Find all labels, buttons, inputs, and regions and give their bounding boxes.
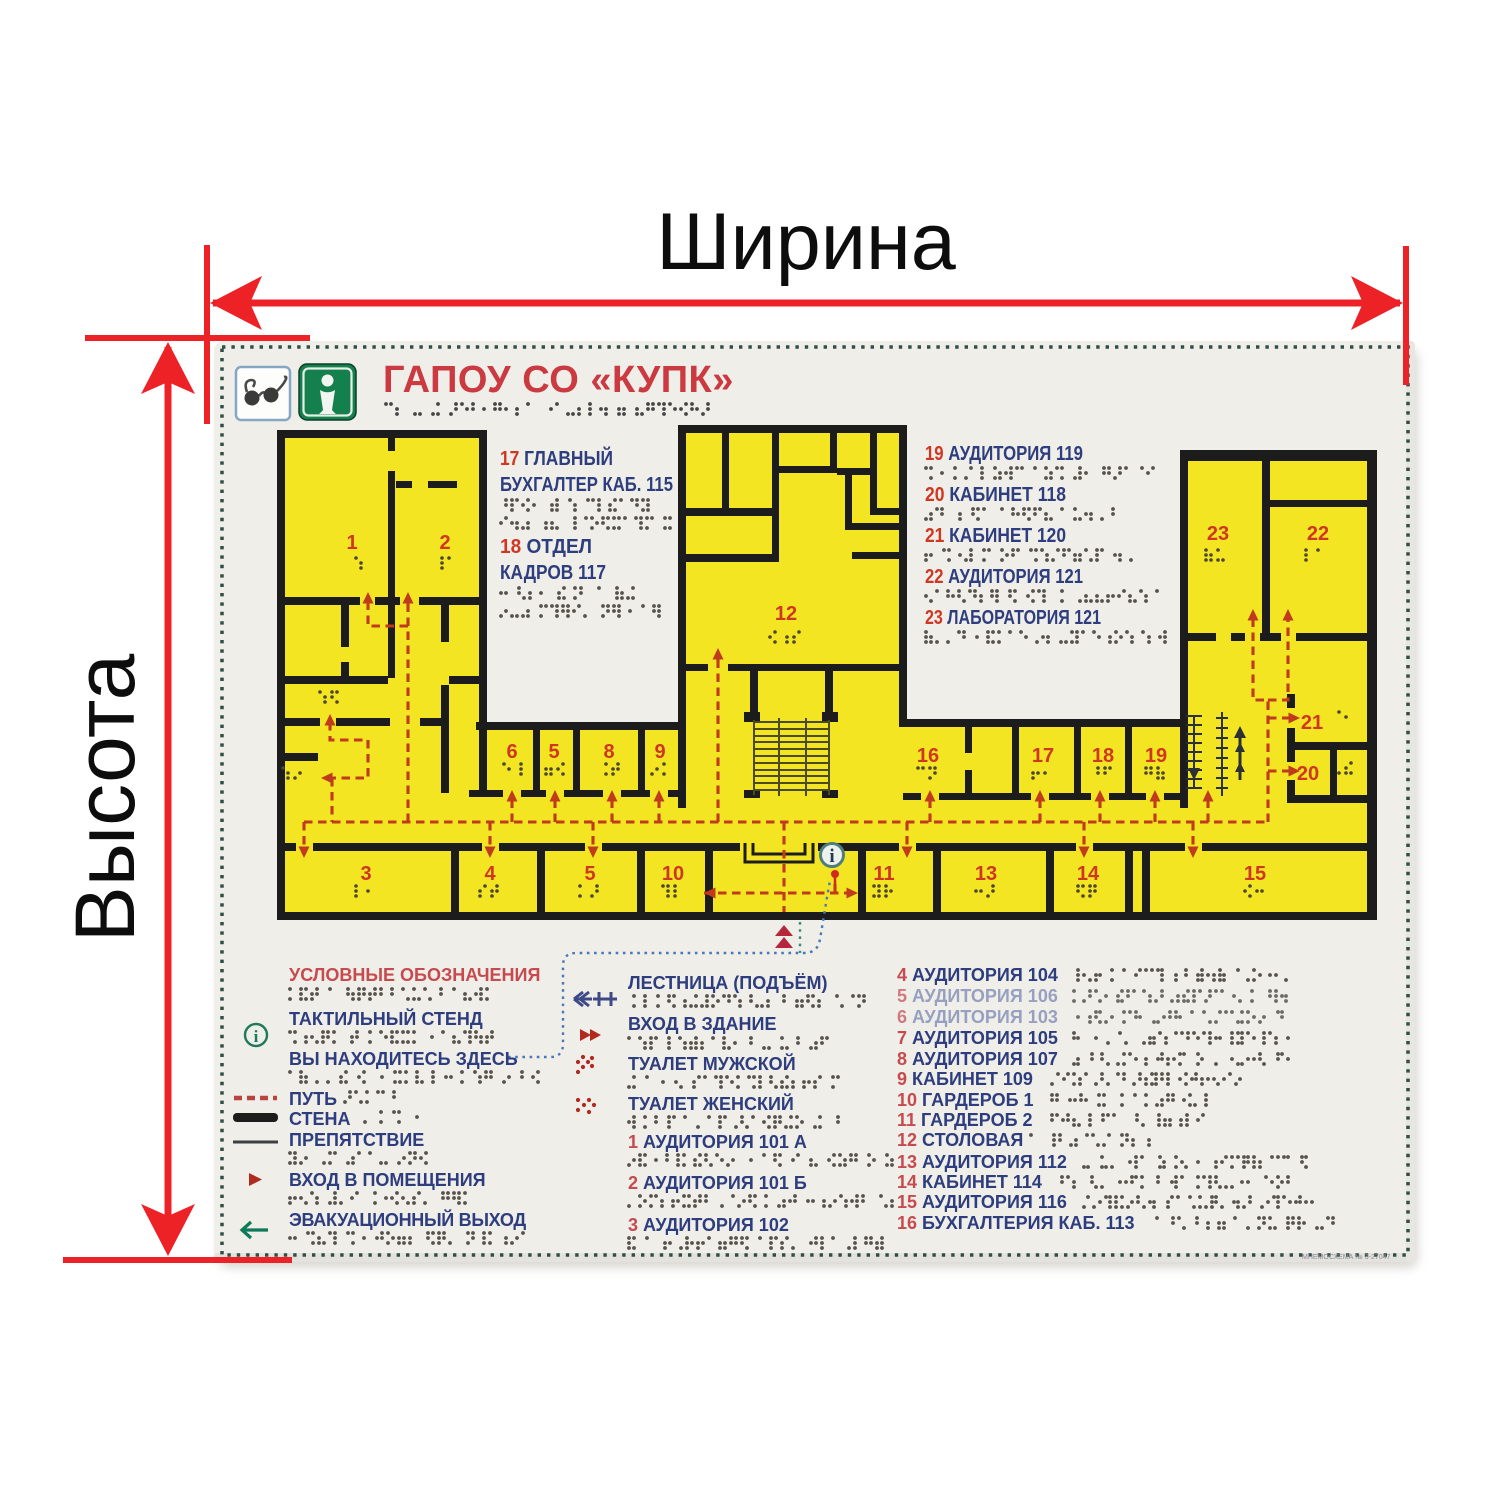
svg-text:17 ГЛАВНЫЙ: 17 ГЛАВНЫЙ (500, 446, 613, 470)
svg-text:i: i (829, 846, 834, 867)
svg-text:4 АУДИТОРИЯ 104: 4 АУДИТОРИЯ 104 (897, 965, 1058, 985)
svg-text:6 АУДИТОРИЯ 103: 6 АУДИТОРИЯ 103 (897, 1007, 1058, 1027)
svg-text:15: 15 (1244, 863, 1266, 885)
svg-text:6: 6 (506, 741, 517, 763)
svg-text:1: 1 (346, 532, 357, 554)
svg-text:ВХОД В ПОМЕЩЕНИЯ: ВХОД В ПОМЕЩЕНИЯ (289, 1170, 486, 1190)
svg-text:5: 5 (548, 741, 559, 763)
svg-text:Ширина: Ширина (656, 197, 957, 287)
svg-text:ТАКТИЛЬНЫЙ СТЕНД: ТАКТИЛЬНЫЙ СТЕНД (289, 1008, 483, 1029)
svg-text:22: 22 (1307, 523, 1329, 545)
svg-text:4: 4 (484, 863, 496, 885)
svg-text:12 СТОЛОВАЯ: 12 СТОЛОВАЯ (897, 1130, 1023, 1150)
svg-text:Высота: Высота (58, 653, 152, 942)
svg-text:5 АУДИТОРИЯ 106: 5 АУДИТОРИЯ 106 (897, 986, 1058, 1006)
svg-text:2: 2 (439, 532, 450, 554)
svg-text:17: 17 (1032, 745, 1054, 767)
svg-text:ГАПОУ СО «КУПК»: ГАПОУ СО «КУПК» (383, 359, 734, 401)
svg-text:18 ОТДЕЛ: 18 ОТДЕЛ (500, 536, 592, 558)
svg-text:11 ГАРДЕРОБ 2: 11 ГАРДЕРОБ 2 (897, 1110, 1033, 1130)
svg-text:11: 11 (873, 863, 894, 885)
svg-text:5: 5 (584, 863, 595, 885)
svg-text:10: 10 (662, 863, 684, 885)
svg-text:20: 20 (1297, 763, 1319, 785)
svg-text:3: 3 (360, 863, 371, 885)
svg-text:ПУТЬ: ПУТЬ (289, 1089, 337, 1109)
svg-text:7 АУДИТОРИЯ 105: 7 АУДИТОРИЯ 105 (897, 1028, 1058, 1048)
svg-text:ЛЕСТНИЦА (ПОДЪЁМ): ЛЕСТНИЦА (ПОДЪЁМ) (628, 973, 827, 993)
svg-text:12: 12 (775, 603, 797, 625)
svg-text:16 БУХГАЛТЕРИЯ КАБ. 113: 16 БУХГАЛТЕРИЯ КАБ. 113 (897, 1213, 1135, 1233)
svg-text:МНЕМОСХЕМА № 3-27047: МНЕМОСХЕМА № 3-27047 (1302, 1254, 1391, 1261)
svg-text:14 КАБИНЕТ 114: 14 КАБИНЕТ 114 (897, 1172, 1042, 1192)
svg-text:21 КАБИНЕТ 120: 21 КАБИНЕТ 120 (925, 525, 1066, 547)
svg-text:i: i (254, 1027, 259, 1046)
svg-text:15 АУДИТОРИЯ 116: 15 АУДИТОРИЯ 116 (897, 1192, 1067, 1212)
svg-text:2 АУДИТОРИЯ 101 Б: 2 АУДИТОРИЯ 101 Б (628, 1173, 807, 1193)
svg-text:БУХГАЛТЕР КАБ. 115: БУХГАЛТЕР КАБ. 115 (500, 474, 673, 496)
svg-text:14: 14 (1077, 863, 1100, 885)
svg-text:ПРЕПЯТСТВИЕ: ПРЕПЯТСТВИЕ (289, 1130, 424, 1150)
svg-text:9 КАБИНЕТ 109: 9 КАБИНЕТ 109 (897, 1069, 1033, 1089)
svg-text:13 АУДИТОРИЯ 112: 13 АУДИТОРИЯ 112 (897, 1152, 1067, 1172)
svg-text:ЭВАКУАЦИОННЫЙ ВЫХОД: ЭВАКУАЦИОННЫЙ ВЫХОД (289, 1209, 526, 1230)
svg-text:22 АУДИТОРИЯ 121: 22 АУДИТОРИЯ 121 (925, 566, 1083, 588)
svg-text:1 АУДИТОРИЯ 101 А: 1 АУДИТОРИЯ 101 А (628, 1132, 807, 1152)
svg-text:ТУАЛЕТ ЖЕНСКИЙ: ТУАЛЕТ ЖЕНСКИЙ (628, 1093, 794, 1114)
svg-text:16: 16 (917, 745, 939, 767)
svg-text:20 КАБИНЕТ 118: 20 КАБИНЕТ 118 (925, 484, 1066, 506)
svg-text:8: 8 (603, 741, 614, 763)
svg-text:21: 21 (1301, 712, 1323, 734)
svg-text:СТЕНА: СТЕНА (289, 1109, 351, 1129)
svg-text:23: 23 (1207, 523, 1229, 545)
svg-text:10 ГАРДЕРОБ 1: 10 ГАРДЕРОБ 1 (897, 1090, 1034, 1110)
svg-text:3 АУДИТОРИЯ 102: 3 АУДИТОРИЯ 102 (628, 1215, 789, 1235)
svg-text:23 ЛАБОРАТОРИЯ 121: 23 ЛАБОРАТОРИЯ 121 (925, 607, 1101, 629)
svg-text:8 АУДИТОРИЯ 107: 8 АУДИТОРИЯ 107 (897, 1049, 1058, 1069)
svg-text:ВХОД В ЗДАНИЕ: ВХОД В ЗДАНИЕ (628, 1014, 776, 1034)
svg-text:18: 18 (1092, 745, 1114, 767)
svg-text:УСЛОВНЫЕ ОБОЗНАЧЕНИЯ: УСЛОВНЫЕ ОБОЗНАЧЕНИЯ (289, 965, 540, 985)
svg-text:ВЫ НАХОДИТЕСЬ ЗДЕСЬ: ВЫ НАХОДИТЕСЬ ЗДЕСЬ (289, 1049, 518, 1069)
svg-text:19 АУДИТОРИЯ 119: 19 АУДИТОРИЯ 119 (925, 443, 1083, 465)
svg-text:19: 19 (1145, 745, 1167, 767)
svg-text:КАДРОВ 117: КАДРОВ 117 (500, 562, 606, 584)
svg-text:ТУАЛЕТ МУЖСКОЙ: ТУАЛЕТ МУЖСКОЙ (628, 1053, 796, 1074)
svg-text:9: 9 (654, 741, 665, 763)
svg-text:13: 13 (975, 863, 997, 885)
